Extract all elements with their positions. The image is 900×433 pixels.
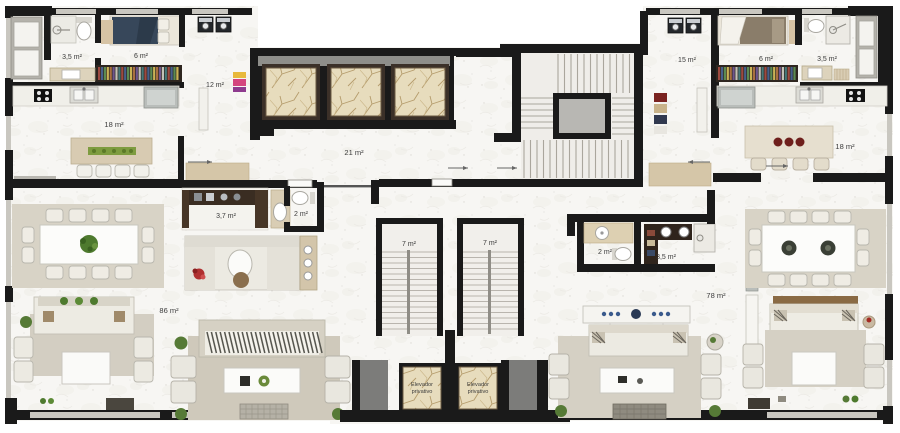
svg-text:86 m²: 86 m²: [159, 306, 179, 315]
svg-text:6 m²: 6 m²: [759, 56, 774, 63]
svg-text:3,5 m²: 3,5 m²: [62, 54, 83, 61]
svg-text:78 m²: 78 m²: [706, 291, 726, 300]
svg-text:18 m²: 18 m²: [835, 142, 855, 151]
svg-text:18 m²: 18 m²: [104, 120, 124, 129]
svg-text:3,5 m²: 3,5 m²: [817, 56, 838, 63]
svg-text:15 m²: 15 m²: [678, 57, 697, 64]
svg-text:2 m²: 2 m²: [598, 249, 613, 256]
svg-text:7 m²: 7 m²: [402, 241, 417, 248]
svg-text:Elevador: Elevador: [467, 382, 489, 388]
svg-text:7 m²: 7 m²: [483, 240, 498, 247]
svg-text:6 m²: 6 m²: [134, 53, 149, 60]
svg-text:3,7 m²: 3,7 m²: [216, 213, 237, 220]
svg-text:12 m²: 12 m²: [206, 82, 225, 89]
svg-text:privativo: privativo: [468, 389, 489, 395]
svg-text:2 m²: 2 m²: [294, 211, 309, 218]
svg-text:privativo: privativo: [412, 389, 433, 395]
svg-text:Elevador: Elevador: [411, 382, 433, 388]
svg-text:3,5 m²: 3,5 m²: [656, 254, 677, 261]
svg-text:21 m²: 21 m²: [344, 148, 364, 157]
